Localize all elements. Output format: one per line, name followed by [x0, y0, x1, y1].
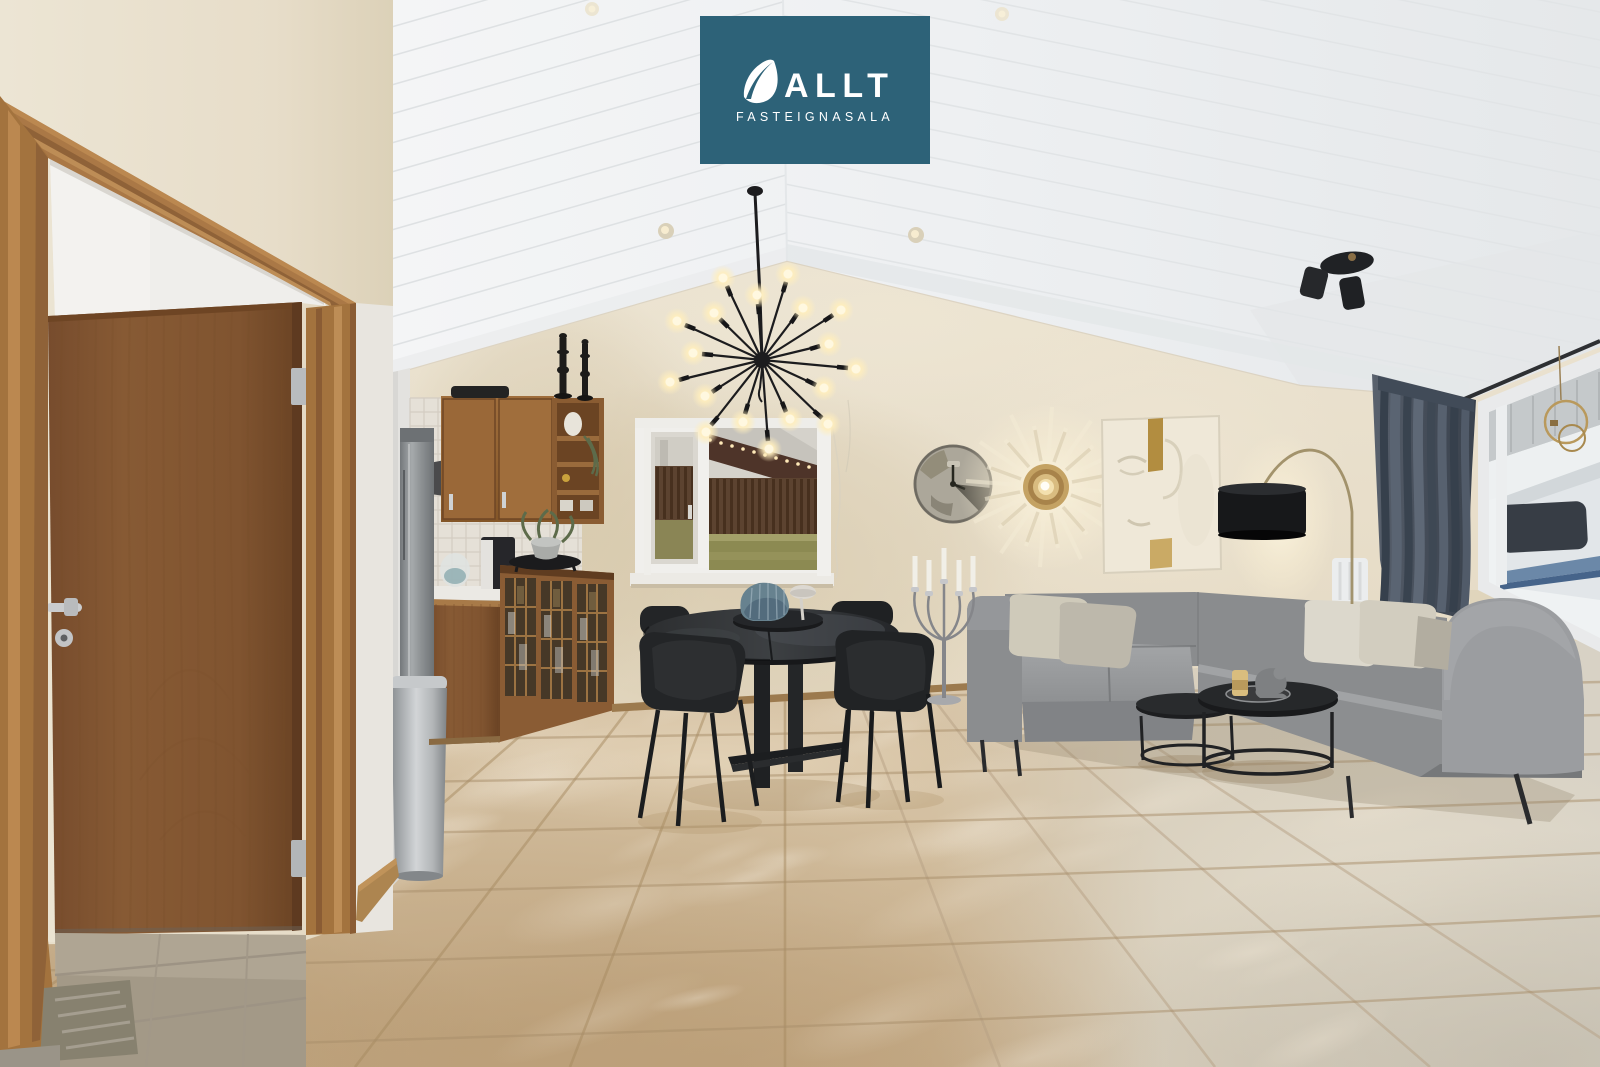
svg-text:FASTEIGNASALA: FASTEIGNASALA: [736, 110, 894, 124]
svg-text:ALLT: ALLT: [784, 67, 894, 105]
